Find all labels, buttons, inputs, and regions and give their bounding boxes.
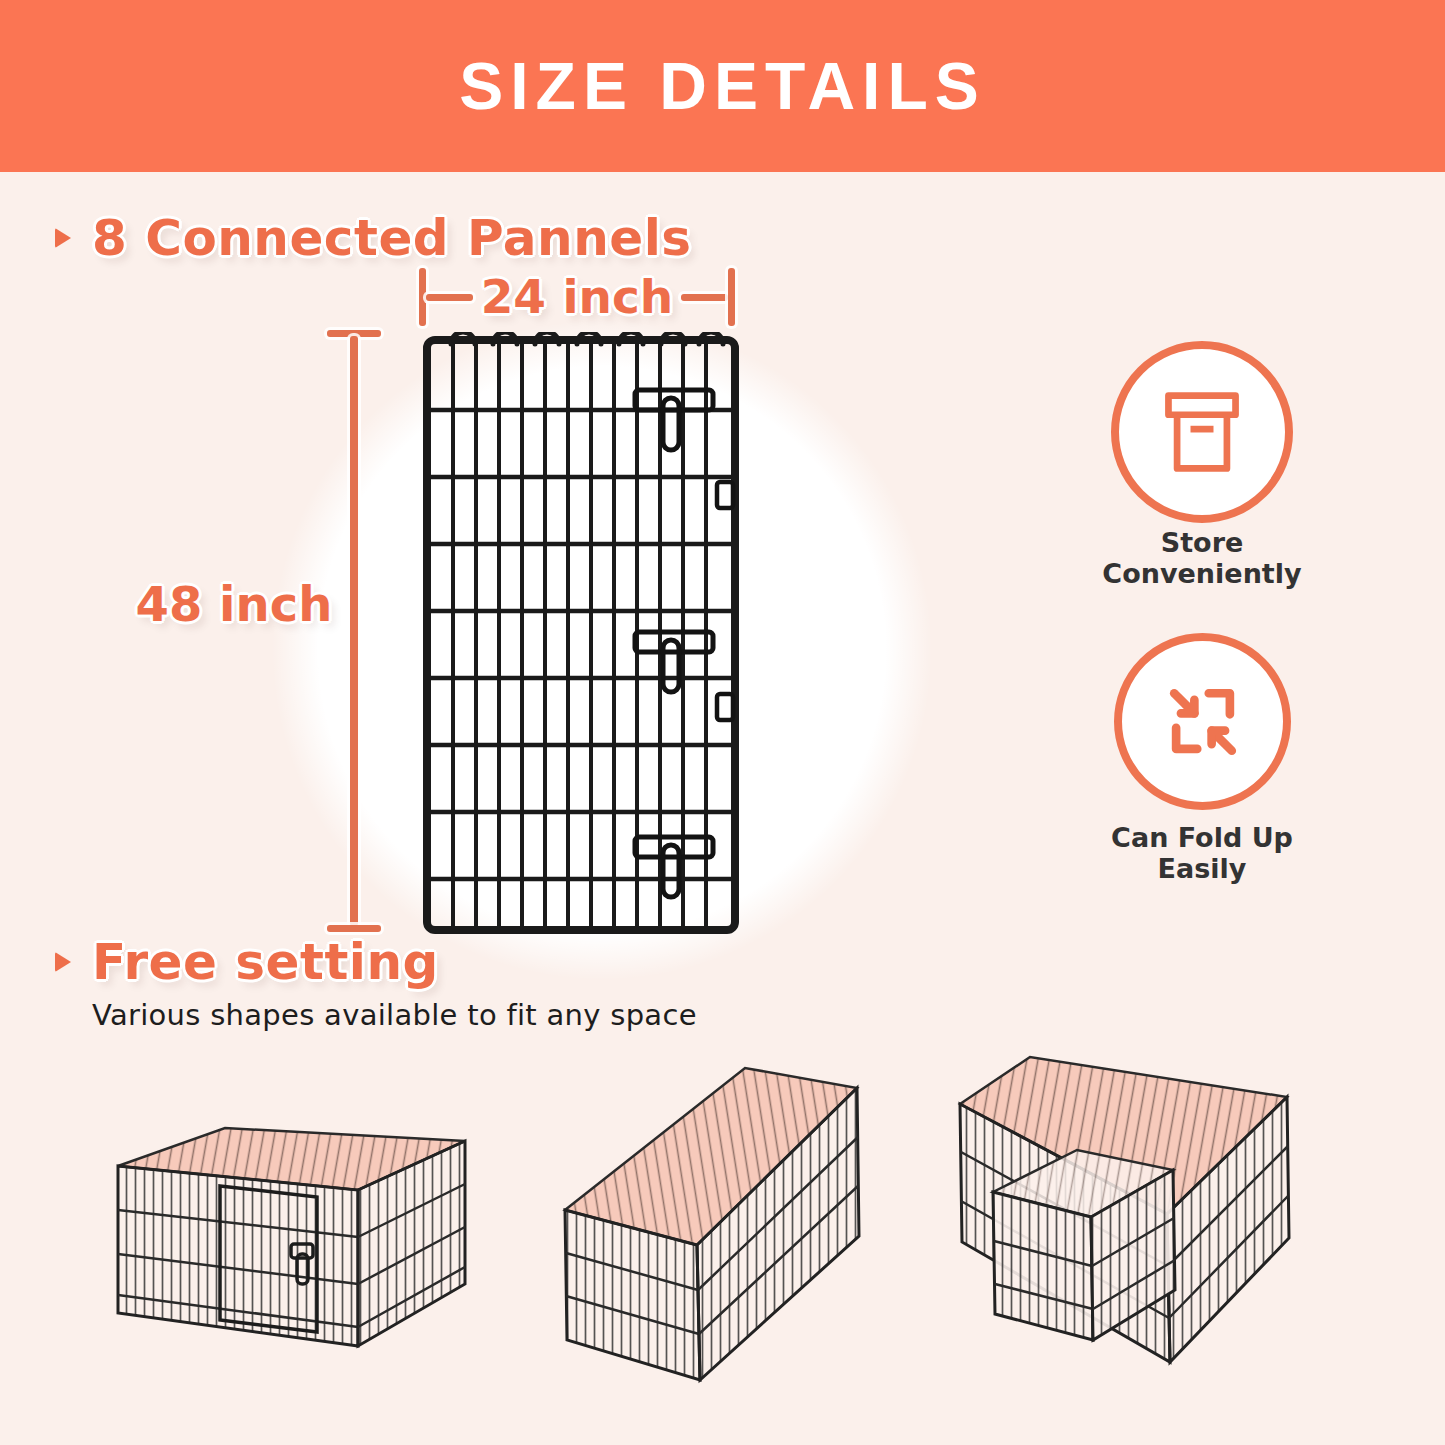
measure-line <box>350 336 358 926</box>
wire-panel-image <box>423 332 739 936</box>
free-setting-description: Various shapes available to fit any spac… <box>92 998 697 1032</box>
width-measurement: 24 inch <box>419 268 735 326</box>
size-details-infographic: SIZE DETAILS 8 Connected Pannels 24 inch… <box>0 0 1445 1445</box>
measure-end-bar <box>327 925 381 932</box>
page-title: SIZE DETAILS <box>459 48 985 124</box>
section-heading-text: 8 Connected Pannels <box>92 212 692 264</box>
section-heading-panels: 8 Connected Pannels <box>55 212 692 264</box>
triangle-bullet-icon <box>55 952 71 972</box>
section-heading-text: Free setting <box>92 936 439 988</box>
fold-label-line2: Easily <box>1072 853 1332 884</box>
store-label-line1: Store <box>1072 527 1332 558</box>
long-rectangle-playpen-image <box>545 1052 875 1387</box>
fold-feature-label: Can Fold Up Easily <box>1072 822 1332 884</box>
fold-feature-circle <box>1114 633 1291 810</box>
triangle-bullet-icon <box>55 228 71 248</box>
header-banner: SIZE DETAILS <box>0 0 1445 172</box>
section-heading-free-setting: Free setting <box>55 936 439 988</box>
height-label: 48 inch <box>132 576 336 632</box>
measure-line <box>681 294 728 301</box>
measure-line <box>426 294 473 301</box>
store-label-line2: Conveniently <box>1072 558 1332 589</box>
fold-arrows-icon <box>1155 674 1251 770</box>
measure-end-bar <box>419 268 426 326</box>
square-playpen-image <box>95 1108 480 1353</box>
l-shape-playpen-image <box>935 1042 1305 1397</box>
storage-box-icon <box>1154 386 1250 478</box>
store-feature-label: Store Conveniently <box>1072 527 1332 589</box>
store-feature-circle <box>1111 341 1293 523</box>
measure-end-bar <box>728 268 735 326</box>
panel-latch-icon <box>635 390 713 897</box>
width-label: 24 inch <box>481 268 674 326</box>
fold-label-line1: Can Fold Up <box>1072 822 1332 853</box>
